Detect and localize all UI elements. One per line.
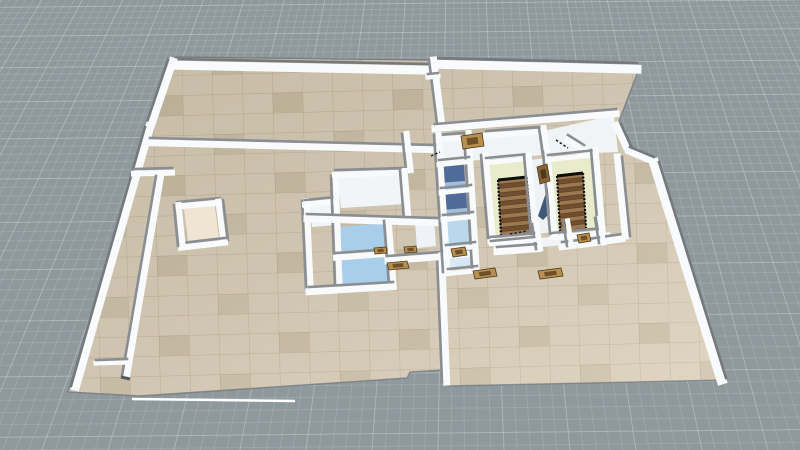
door-east-room: [577, 233, 591, 243]
wall-face: [405, 171, 409, 221]
wall-face: [497, 249, 538, 252]
wall-face: [134, 173, 172, 174]
door-core-north: [461, 133, 484, 149]
closet-floor: [184, 206, 219, 241]
wall-face: [443, 217, 473, 220]
wall-face: [428, 76, 438, 77]
wall-face: [407, 134, 411, 170]
office-room-floor-nw: [337, 172, 406, 208]
door-bathroom-2: [404, 246, 417, 253]
door-shaft-lobby: [451, 247, 467, 257]
wall-doorway-sill-top: [428, 73, 438, 77]
staircase-east: [557, 173, 586, 231]
wing-inner-wall-cap: [121, 377, 130, 379]
wall-face: [439, 162, 469, 165]
door-leaf: [407, 248, 414, 252]
wing-stub-wall: [96, 359, 127, 363]
wall-face: [388, 257, 440, 261]
wall-face: [96, 362, 127, 363]
floorplan-3d-viewport[interactable]: [0, 0, 800, 450]
wall-face: [336, 176, 340, 287]
wing-connector-wall: [134, 168, 172, 174]
wall-face: [177, 203, 220, 207]
wall-face: [307, 219, 437, 223]
wall-face: [176, 65, 428, 70]
wall-top: [96, 359, 127, 360]
wall-face: [436, 64, 637, 69]
wall-face: [335, 173, 404, 175]
wall-face: [336, 254, 390, 258]
floorplan-3d-render: [0, 0, 800, 450]
wall-face: [179, 205, 183, 246]
wall-face: [486, 132, 541, 136]
wall-top: [134, 168, 172, 169]
door-leaf: [377, 249, 384, 253]
wall-face: [305, 202, 335, 205]
door-bathroom-1: [374, 247, 387, 254]
door-corridor-west: [387, 261, 409, 270]
wall-top: [428, 73, 438, 74]
wall-face: [441, 190, 471, 193]
